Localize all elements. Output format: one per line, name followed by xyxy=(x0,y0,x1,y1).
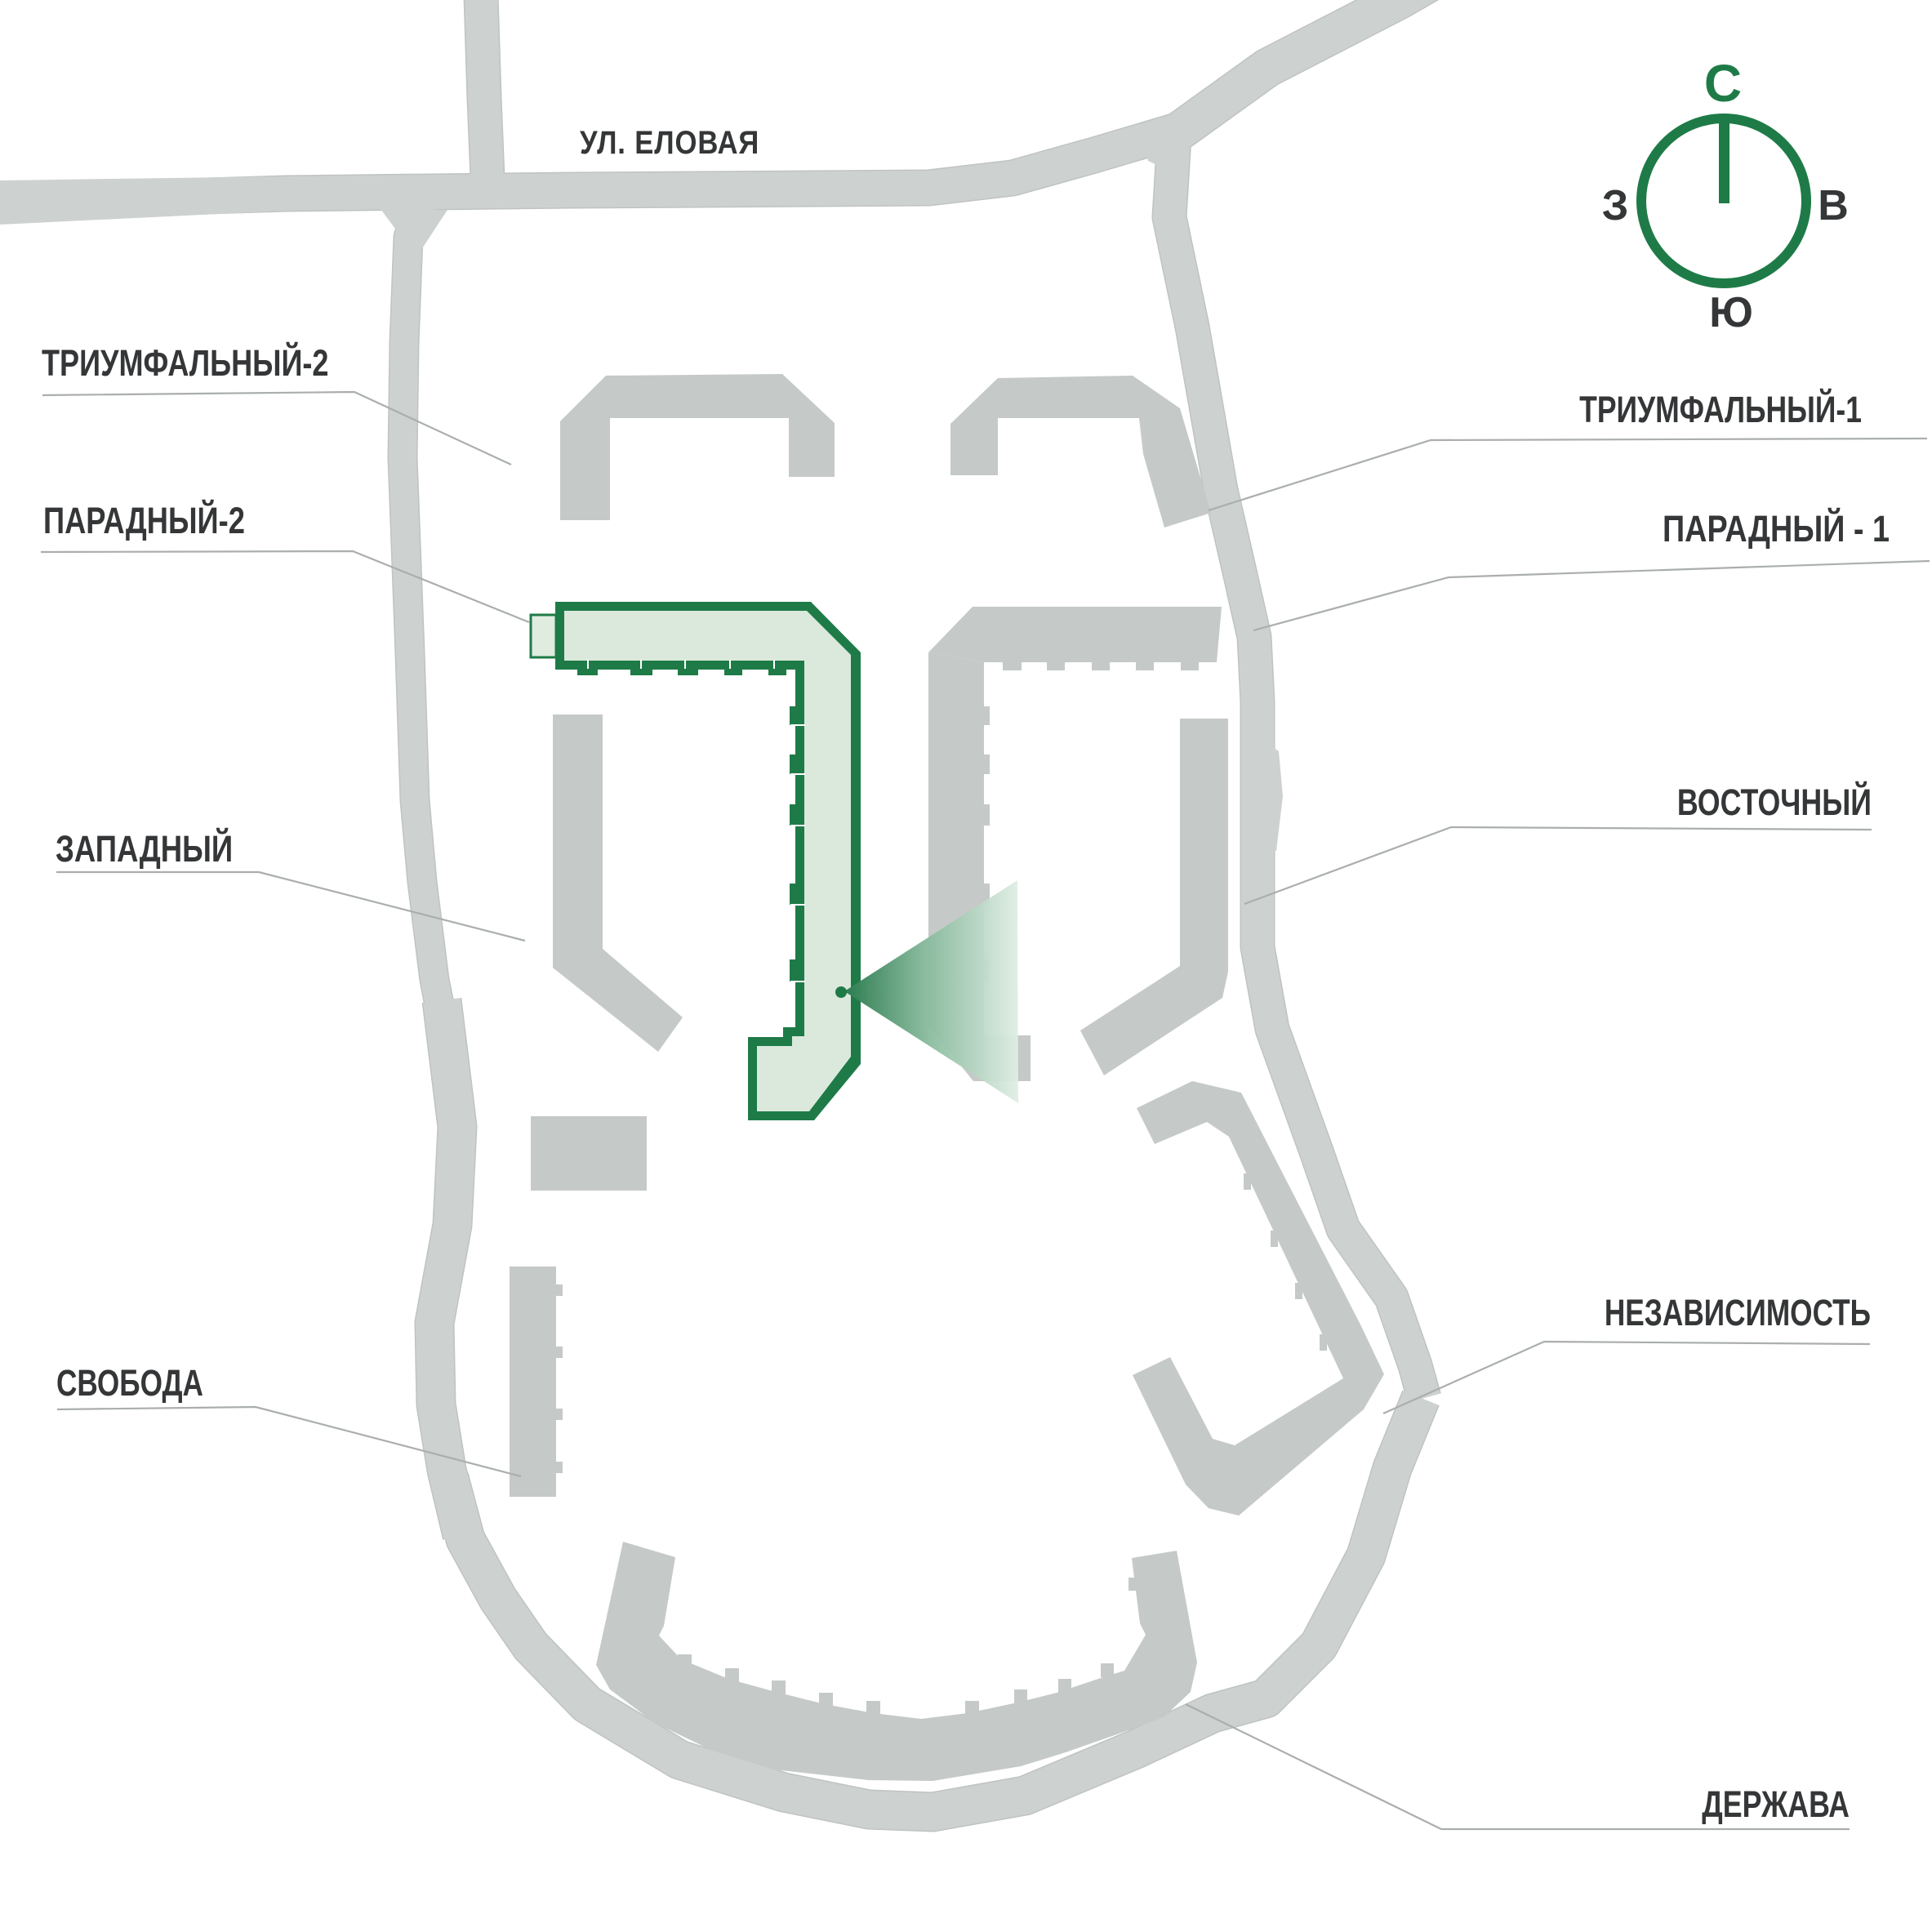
svg-text:НЕЗАВИСИМОСТЬ: НЕЗАВИСИМОСТЬ xyxy=(1605,1292,1871,1333)
svg-text:ТРИУМФАЛЬНЫЙ-2: ТРИУМФАЛЬНЫЙ-2 xyxy=(42,342,328,384)
svg-text:ПАРАДНЫЙ - 1: ПАРАДНЫЙ - 1 xyxy=(1663,508,1890,550)
svg-text:З: З xyxy=(1602,182,1629,229)
svg-text:ВОСТОЧНЫЙ: ВОСТОЧНЫЙ xyxy=(1677,781,1872,823)
svg-text:ТРИУМФАЛЬНЫЙ-1: ТРИУМФАЛЬНЫЙ-1 xyxy=(1579,389,1862,430)
svg-text:СВОБОДА: СВОБОДА xyxy=(56,1362,203,1404)
svg-text:ПАРАДНЫЙ-2: ПАРАДНЫЙ-2 xyxy=(43,500,245,541)
svg-text:Ю: Ю xyxy=(1709,289,1753,336)
svg-text:С: С xyxy=(1704,54,1742,113)
svg-text:УЛ. ЕЛОВАЯ: УЛ. ЕЛОВАЯ xyxy=(580,124,759,161)
svg-text:В: В xyxy=(1818,182,1849,229)
svg-text:ЗАПАДНЫЙ: ЗАПАДНЫЙ xyxy=(56,828,233,870)
svg-text:ДЕРЖАВА: ДЕРЖАВА xyxy=(1702,1783,1850,1825)
